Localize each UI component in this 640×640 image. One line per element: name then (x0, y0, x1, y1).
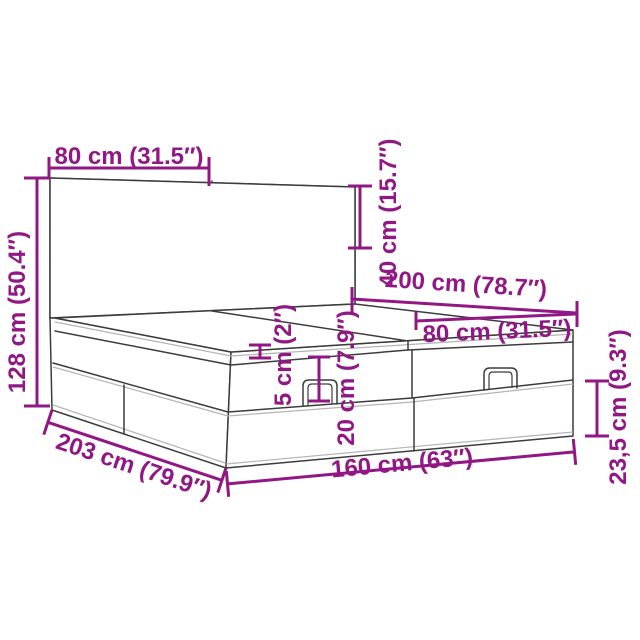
dim-label-total-height: 128 cm (50.4″) (4, 231, 31, 393)
bed-dimension-diagram: 80 cm (31.5″) 40 cm (15.7″) 128 cm (50.4… (0, 0, 640, 640)
diagram-canvas: 80 cm (31.5″) 40 cm (15.7″) 128 cm (50.4… (0, 0, 640, 640)
dim-label-lid-section-height: 20 cm (7.9″) (333, 310, 360, 446)
dim-label-base-section-height: 23,5 cm (9.3″) (605, 329, 632, 485)
dim-label-top-pad-thickness: 5 cm (2″) (270, 304, 297, 406)
headboard (48, 176, 358, 321)
dim-label-headboard-panel-width: 80 cm (31.5″) (55, 143, 204, 170)
headboard-outline-stroke (50, 178, 355, 318)
